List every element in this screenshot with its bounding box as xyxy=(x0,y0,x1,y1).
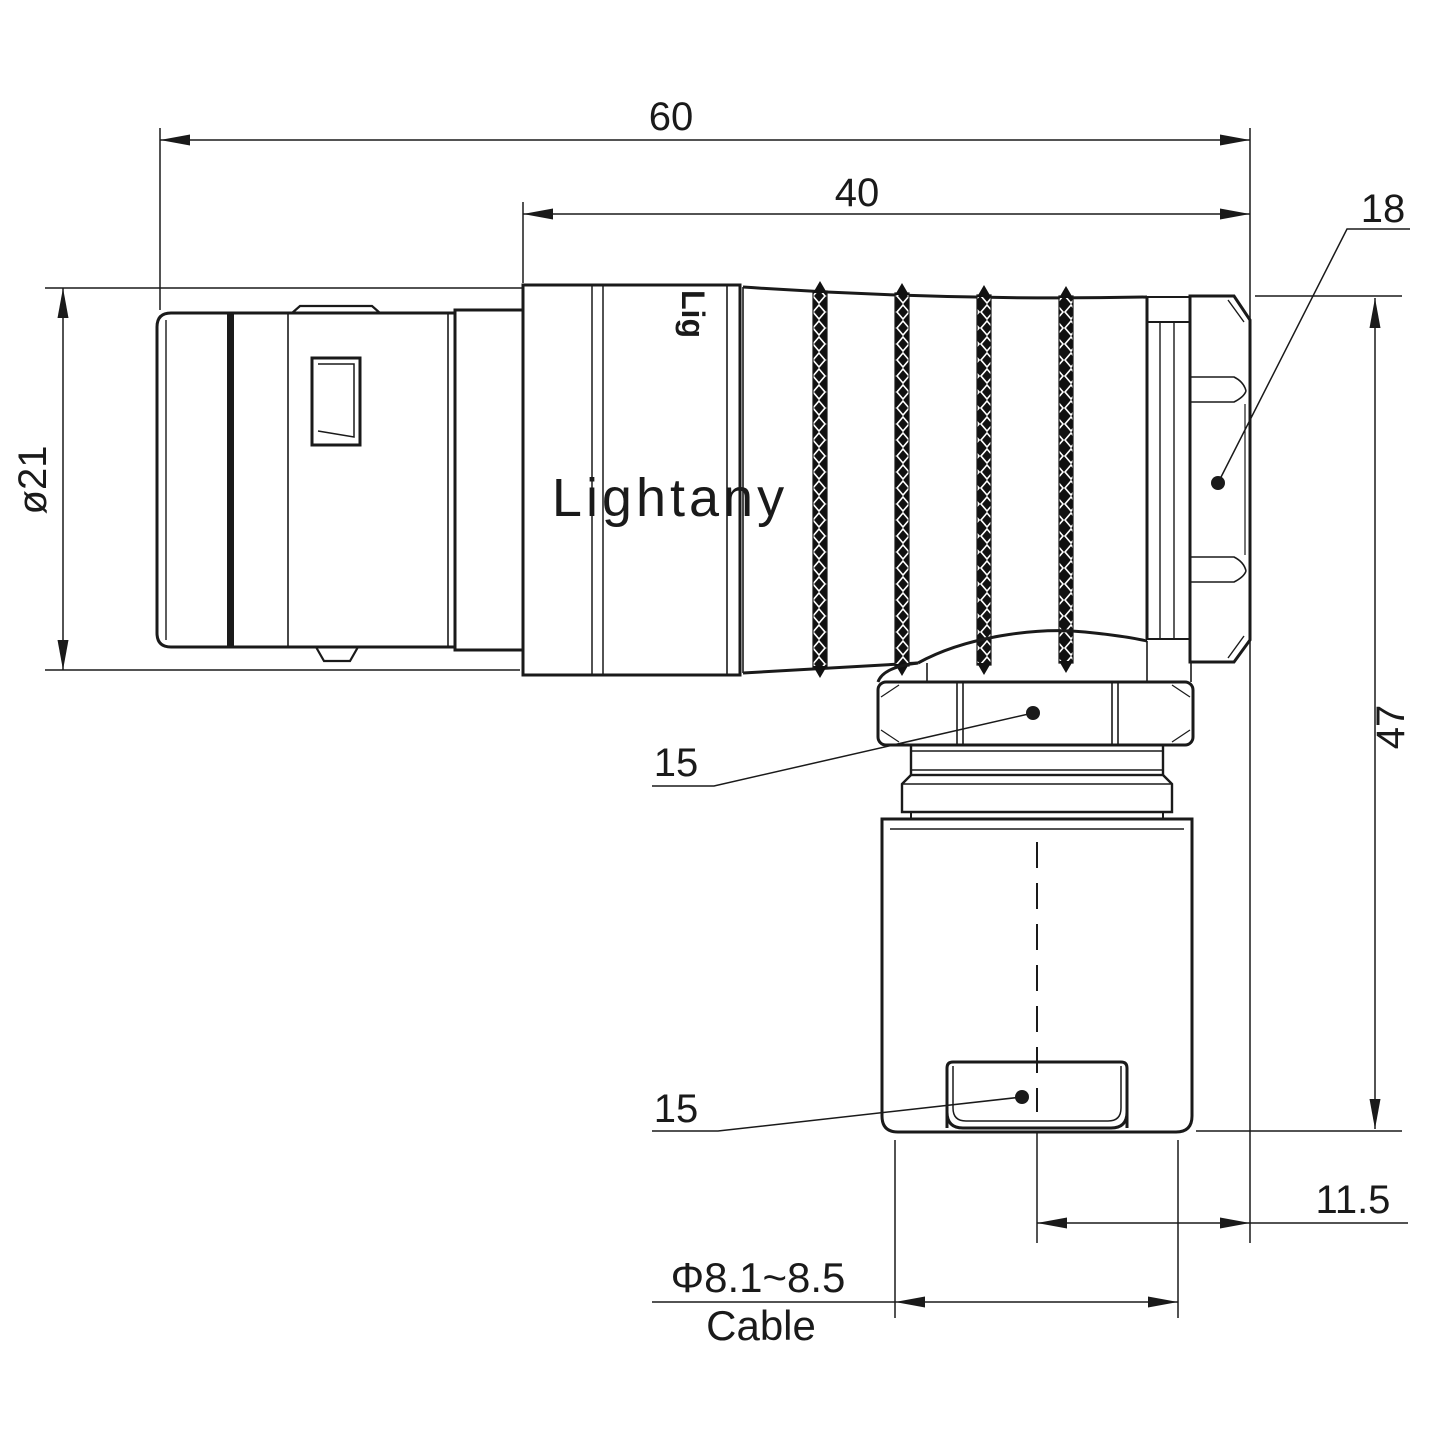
body-print-text: Lig xyxy=(675,290,711,338)
leader-clamp-hex xyxy=(652,1090,1029,1131)
tapered-shell xyxy=(743,287,1190,673)
neck-section xyxy=(448,310,523,650)
connector-technical-drawing: Lightany Lig 60 40 18 ø21 47 15 15 11.5 … xyxy=(0,0,1440,1440)
dim-label-15a: 15 xyxy=(654,741,699,785)
collar xyxy=(1147,322,1190,639)
dim-label-47: 47 xyxy=(1369,705,1413,750)
dim-label-18: 18 xyxy=(1361,187,1406,231)
leader-nut-width xyxy=(1211,229,1410,490)
drawing-canvas: Lightany Lig 60 40 18 ø21 47 15 15 11.5 … xyxy=(0,0,1440,1440)
elbow xyxy=(878,631,1191,682)
dim-label-15b: 15 xyxy=(654,1087,699,1131)
dim-label-60: 60 xyxy=(649,95,694,139)
dim-front-diameter xyxy=(45,288,523,670)
watermark-text: Lightany xyxy=(552,468,788,528)
connector-body-outline xyxy=(157,281,1250,1243)
gland-steps xyxy=(902,745,1172,819)
dim-label-cable-word: Cable xyxy=(706,1302,816,1349)
latch-window xyxy=(312,358,360,445)
cap-band xyxy=(227,313,234,647)
knurl-bands xyxy=(813,281,1073,678)
dim-label-cable-range: Φ8.1~8.5 xyxy=(671,1254,846,1301)
dim-rear-length xyxy=(523,202,1250,283)
dim-label-dia21: ø21 xyxy=(11,446,55,515)
bottom-lug xyxy=(316,647,358,661)
front-cap xyxy=(157,306,455,661)
dim-label-40: 40 xyxy=(835,171,880,215)
dim-label-11-5: 11.5 xyxy=(1316,1178,1391,1222)
